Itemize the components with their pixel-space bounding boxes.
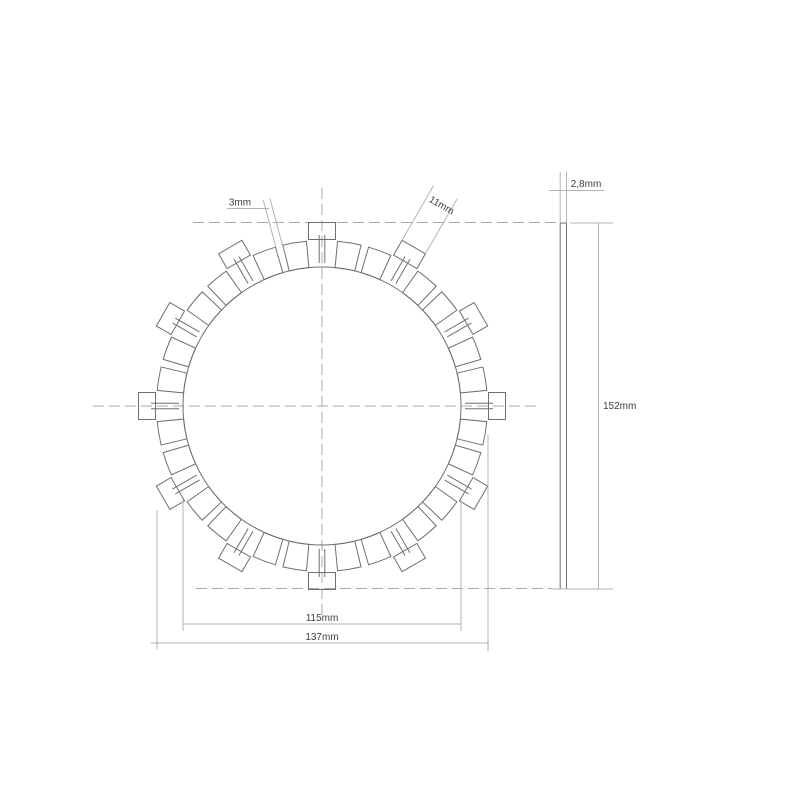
friction-pad	[361, 247, 391, 279]
drive-tab	[219, 240, 251, 268]
dim-label-groove-width: 3mm	[229, 198, 251, 209]
friction-pad	[283, 541, 309, 571]
relief-slit	[239, 257, 253, 281]
side-view-plate	[560, 172, 566, 589]
friction-pad	[403, 271, 437, 305]
drive-tab	[394, 543, 426, 571]
side-view-plate-body	[560, 223, 566, 589]
friction-pad	[335, 541, 361, 571]
friction-pad	[187, 292, 221, 326]
friction-pad	[163, 445, 195, 475]
relief-slit	[391, 531, 405, 555]
relief-slit	[175, 318, 199, 332]
leader-line-groove-right	[270, 198, 285, 252]
dimensions: 2,8mm 152mm 115mm 137mm 3mm 11mm	[151, 179, 636, 651]
relief-slit	[444, 318, 468, 332]
dim-label-tab-width: 11mm	[427, 194, 456, 217]
relief-slit	[234, 528, 248, 552]
friction-pad	[208, 271, 242, 305]
friction-pad	[335, 241, 361, 271]
relief-slit	[447, 475, 471, 489]
friction-pad	[448, 337, 480, 367]
drive-tab	[459, 303, 487, 335]
friction-pad	[361, 532, 391, 564]
drive-tab	[394, 240, 426, 268]
friction-pad	[253, 247, 283, 279]
friction-pad	[208, 507, 242, 541]
relief-slit	[396, 528, 410, 552]
friction-pad	[187, 487, 221, 521]
drive-tab	[459, 478, 487, 510]
drawing-canvas: 2,8mm 152mm 115mm 137mm 3mm 11mm	[0, 0, 800, 800]
relief-slit	[391, 257, 405, 281]
technical-drawing: 2,8mm 152mm 115mm 137mm 3mm 11mm	[0, 0, 800, 800]
relief-slit	[444, 480, 468, 494]
friction-pad	[157, 367, 187, 393]
relief-slit	[396, 259, 410, 283]
relief-slit	[173, 475, 197, 489]
relief-slit	[234, 259, 248, 283]
drive-tab	[156, 303, 184, 335]
dim-label-outer-diameter: 137mm	[305, 632, 338, 643]
friction-pad	[403, 507, 437, 541]
friction-pad	[448, 445, 480, 475]
friction-pad	[423, 487, 457, 521]
friction-pad	[163, 337, 195, 367]
friction-pad	[423, 292, 457, 326]
dim-label-thickness: 2,8mm	[571, 179, 602, 190]
friction-pad	[457, 367, 487, 393]
friction-pad	[253, 532, 283, 564]
friction-pad	[283, 241, 309, 271]
dim-label-overall-diameter: 152mm	[603, 401, 636, 412]
drive-tab	[219, 543, 251, 571]
dim-label-inner-diameter: 115mm	[306, 613, 339, 624]
friction-pad	[157, 419, 187, 445]
relief-slit	[175, 480, 199, 494]
relief-slit	[239, 531, 253, 555]
relief-slit	[173, 323, 197, 337]
relief-slit	[447, 323, 471, 337]
leader-line-tab-left	[402, 185, 434, 240]
friction-pad	[457, 419, 487, 445]
drive-tab	[156, 478, 184, 510]
